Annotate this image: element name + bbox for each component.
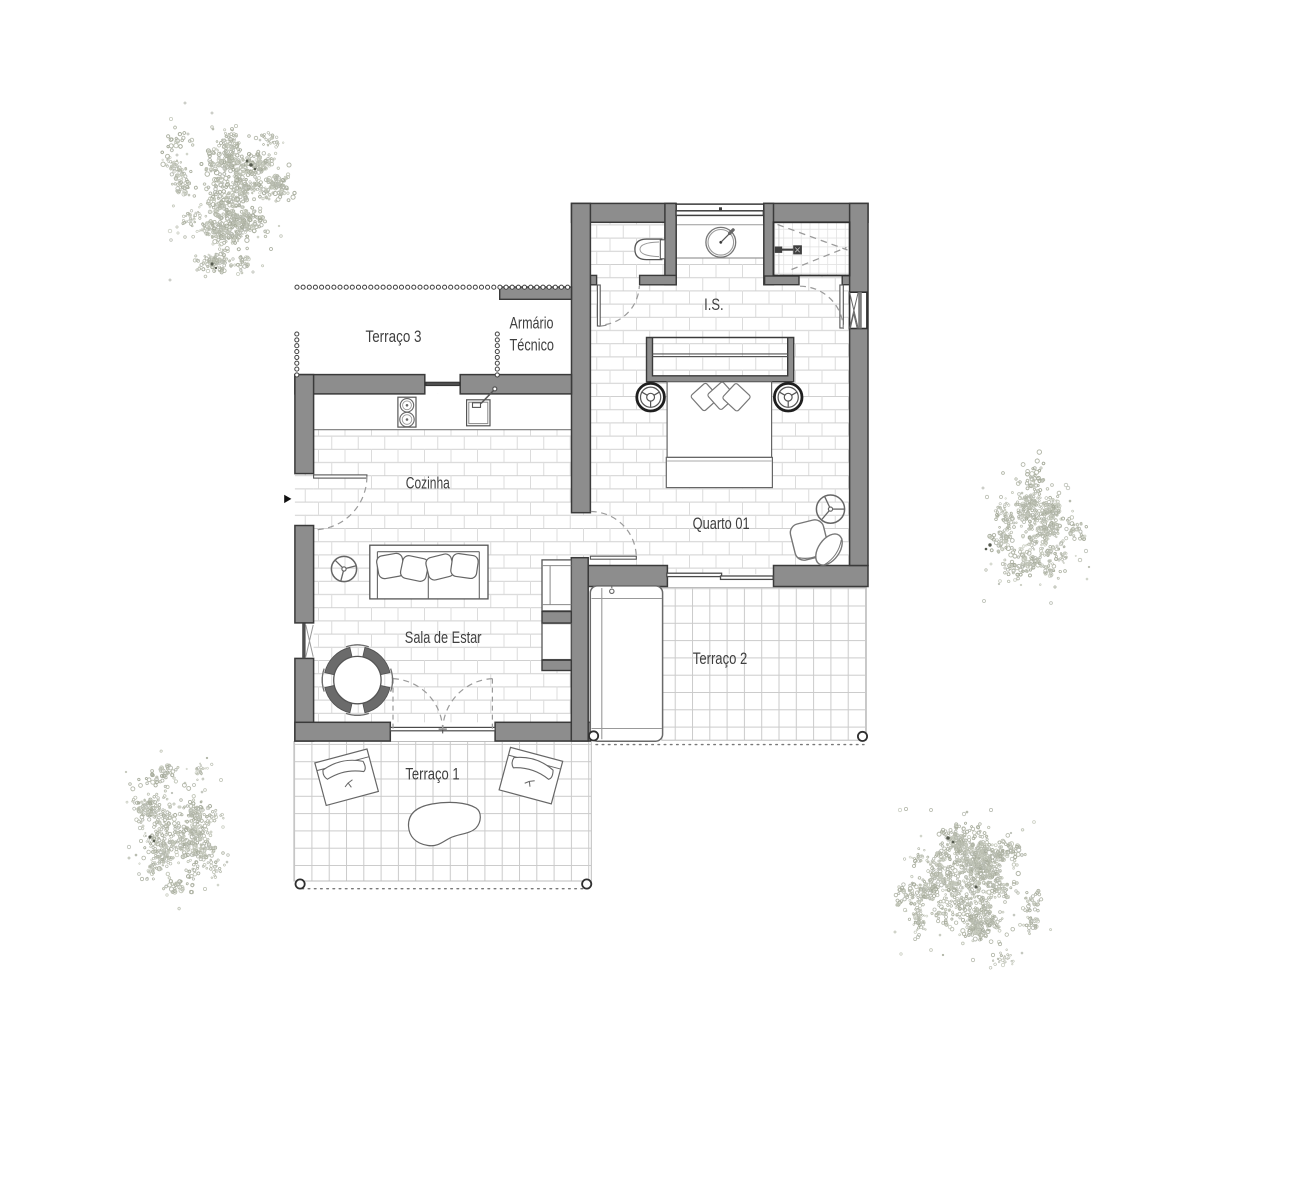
svg-text:Técnico: Técnico (510, 336, 555, 355)
svg-text:Cozinha: Cozinha (406, 473, 450, 492)
svg-text:Quarto 01: Quarto 01 (693, 514, 750, 533)
svg-text:Sala de Estar: Sala de Estar (405, 628, 482, 647)
svg-text:Armário: Armário (510, 314, 554, 333)
svg-text:I.S.: I.S. (704, 295, 724, 314)
svg-text:Terraço 3: Terraço 3 (366, 327, 422, 346)
svg-text:Terraço 1: Terraço 1 (405, 764, 459, 783)
svg-text:Terraço 2: Terraço 2 (693, 649, 748, 668)
